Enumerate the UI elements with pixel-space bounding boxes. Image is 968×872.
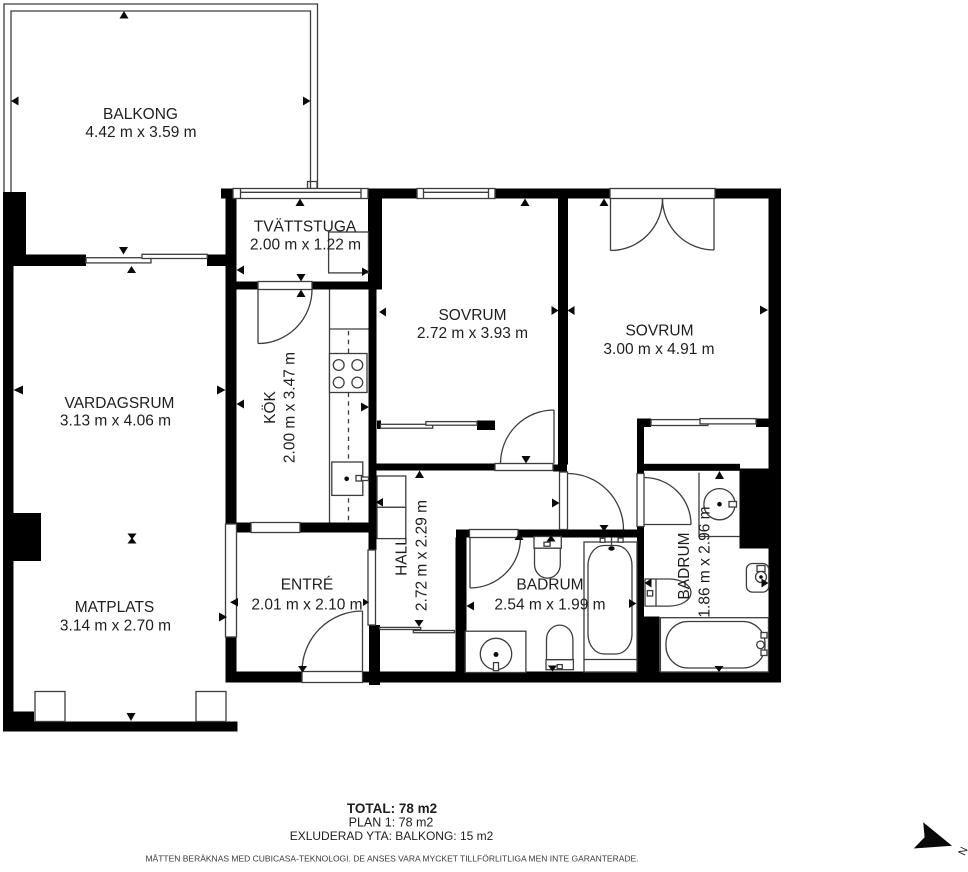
- svg-text:KÖK: KÖK: [261, 390, 279, 423]
- svg-text:2.72 m x 3.93 m: 2.72 m x 3.93 m: [417, 325, 528, 342]
- svg-text:PLAN 1: 78 m2: PLAN 1: 78 m2: [349, 816, 434, 830]
- svg-text:3.13 m x 4.06 m: 3.13 m x 4.06 m: [60, 413, 171, 430]
- svg-text:BALKONG: BALKONG: [103, 106, 178, 123]
- svg-text:TOTAL: 78 m2: TOTAL: 78 m2: [347, 801, 437, 816]
- svg-text:ENTRÉ: ENTRÉ: [281, 577, 334, 594]
- svg-text:VARDAGSRUM: VARDAGSRUM: [65, 395, 175, 412]
- svg-text:2.01 m x 2.10 m: 2.01 m x 2.10 m: [251, 597, 362, 614]
- svg-text:SOVRUM: SOVRUM: [625, 323, 693, 340]
- svg-text:MATPLATS: MATPLATS: [75, 599, 155, 616]
- svg-text:2.54 m x 1.99 m: 2.54 m x 1.99 m: [494, 597, 605, 614]
- svg-text:TVÄTTSTUGA: TVÄTTSTUGA: [254, 219, 357, 236]
- svg-text:2.00 m x 1.22 m: 2.00 m x 1.22 m: [250, 237, 361, 254]
- svg-text:3.00 m x 4.91 m: 3.00 m x 4.91 m: [603, 341, 714, 358]
- svg-text:SOVRUM: SOVRUM: [438, 307, 506, 324]
- svg-text:2.72 m x 2.29 m: 2.72 m x 2.29 m: [414, 500, 431, 611]
- svg-text:HALL: HALL: [393, 537, 410, 576]
- svg-text:BADRUM: BADRUM: [676, 532, 693, 599]
- svg-text:2.00 m x 3.47 m: 2.00 m x 3.47 m: [282, 352, 299, 463]
- svg-text:4.42 m x 3.59 m: 4.42 m x 3.59 m: [85, 124, 196, 141]
- svg-text:EXLUDERAD YTA: BALKONG: 15 m2: EXLUDERAD YTA: BALKONG: 15 m2: [290, 829, 494, 843]
- svg-text:3.14 m x 2.70 m: 3.14 m x 2.70 m: [60, 618, 171, 635]
- svg-text:MÅTTEN BERÄKNAS MED CUBICASA-T: MÅTTEN BERÄKNAS MED CUBICASA-TEKNOLOGI. …: [145, 854, 638, 864]
- svg-text:BADRUM: BADRUM: [516, 577, 583, 594]
- svg-text:1.86 m x 2.96 m: 1.86 m x 2.96 m: [697, 506, 714, 617]
